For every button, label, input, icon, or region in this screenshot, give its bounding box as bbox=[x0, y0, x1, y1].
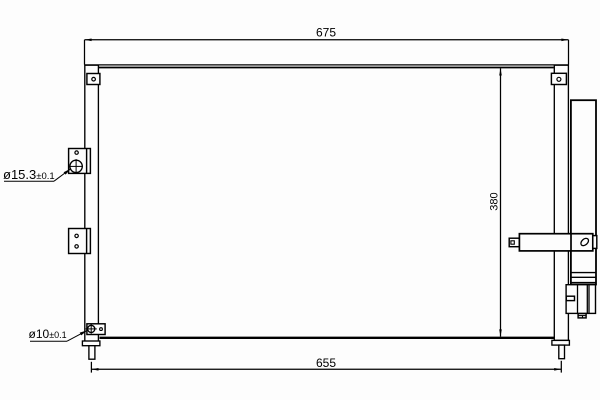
svg-text:675: 675 bbox=[316, 25, 336, 39]
svg-text:655: 655 bbox=[316, 356, 336, 370]
svg-text:ø10±0.1: ø10±0.1 bbox=[29, 327, 67, 341]
svg-text:380: 380 bbox=[488, 192, 500, 210]
